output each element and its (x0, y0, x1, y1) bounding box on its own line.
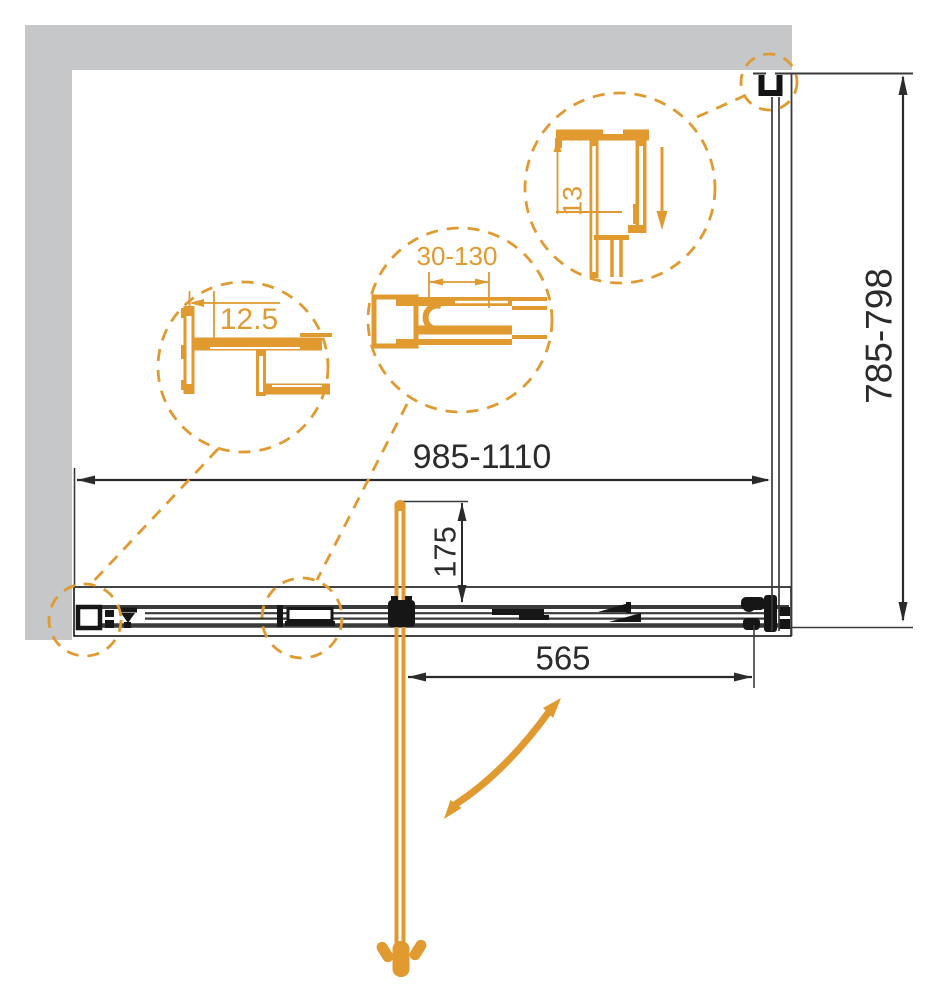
dim-depth-label: 785-798 (861, 268, 898, 404)
dim-door-width-label: 565 (535, 642, 590, 675)
door-pivot-block (388, 596, 415, 627)
detail-profile-middle (374, 272, 547, 346)
dim-door-offset-label: 175 (430, 526, 461, 578)
shower-door-open (395, 500, 406, 953)
dim-depth (899, 75, 908, 622)
detail-middle-label: 30-130 (417, 243, 498, 269)
dim-width (75, 468, 771, 587)
detail-left-label: 12.5 (220, 305, 278, 335)
drawing-geometry (0, 0, 936, 1000)
dim-width-label: 985-1110 (413, 440, 552, 474)
top-wall-bracket (762, 75, 780, 93)
detail-circles (49, 54, 797, 658)
door-handle (375, 938, 429, 977)
door-swing-arrow (444, 698, 561, 819)
technical-drawing-canvas: 985-1110 785-798 565 175 12.5 30-130 13 (0, 0, 936, 1000)
bottom-rail (74, 587, 791, 636)
detail-right-label: 13 (560, 186, 587, 216)
